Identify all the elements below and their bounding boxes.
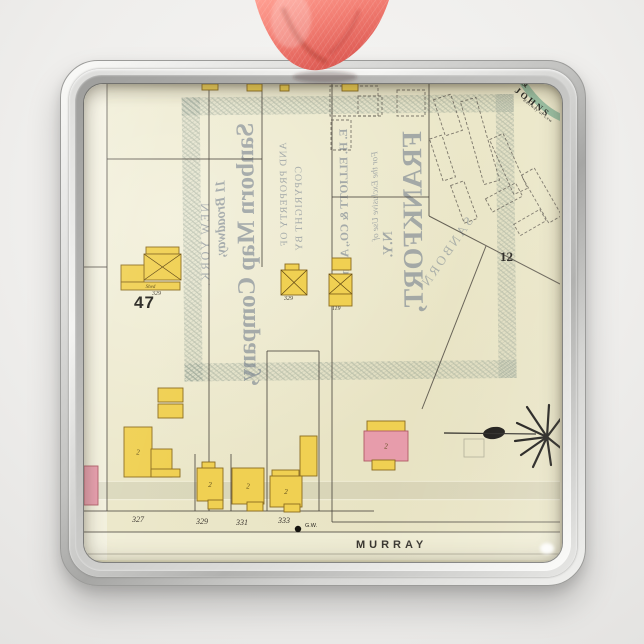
ribbon-shadow: [293, 71, 357, 83]
barn-caption: 329: [152, 291, 161, 297]
house-number: 327: [132, 515, 144, 524]
page-reference-number: 12: [500, 249, 513, 265]
house-number: 331: [236, 518, 248, 527]
ribbon: [247, 0, 397, 86]
photo-stage: NEW YORK. 11 Broadway, Sanborn Map Compa…: [0, 0, 644, 644]
well-label: G.W.: [305, 523, 317, 529]
svg-text:2: 2: [136, 449, 140, 457]
house-number: 333: [278, 516, 290, 525]
svg-text:2: 2: [208, 481, 212, 489]
ornament-frame: NEW YORK. 11 Broadway, Sanborn Map Compa…: [60, 60, 586, 586]
mid-building-caption: 329: [284, 296, 293, 302]
svg-text:2: 2: [384, 443, 388, 451]
map-print: NEW YORK. 11 Broadway, Sanborn Map Compa…: [84, 84, 562, 562]
street-name-murray: MURRAY: [356, 539, 427, 551]
svg-text:2: 2: [284, 488, 288, 496]
house-number: 329: [196, 517, 208, 526]
svg-text:Shed: Shed: [146, 285, 156, 290]
corner-glint: [540, 543, 554, 554]
right-building-caption: 119: [332, 306, 341, 312]
svg-text:2: 2: [246, 483, 250, 491]
map-geometry: Shed22222: [84, 84, 560, 560]
